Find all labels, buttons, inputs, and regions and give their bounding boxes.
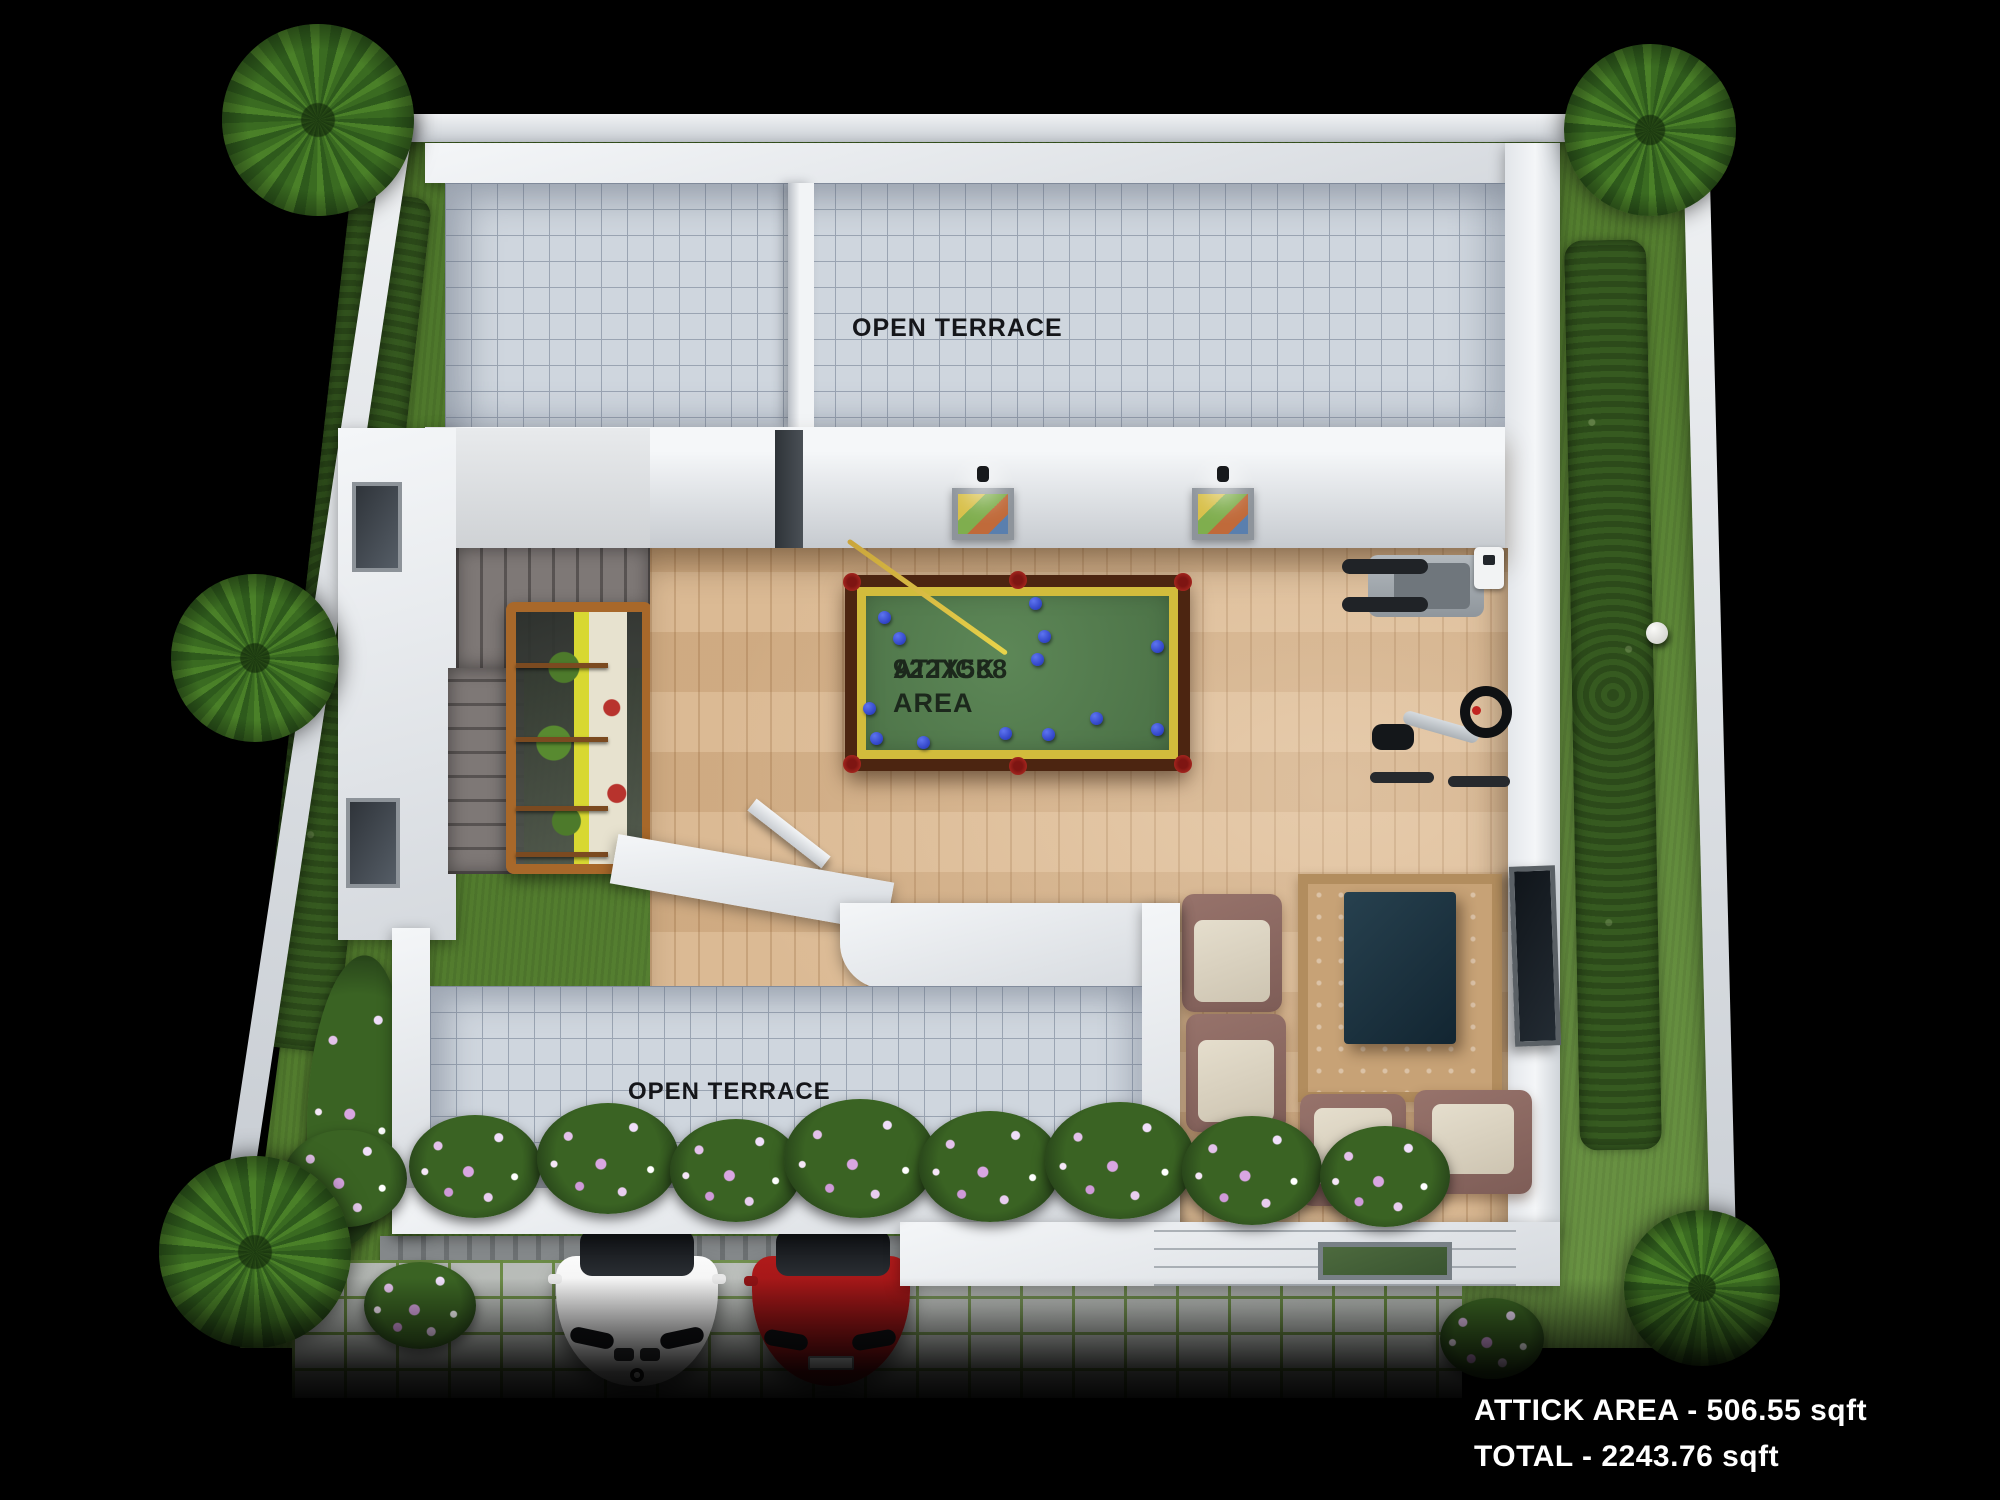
armchair-1-cushion bbox=[1194, 920, 1270, 1002]
boundary-wall-top bbox=[398, 114, 1710, 142]
bike-foot-2 bbox=[1448, 776, 1510, 787]
wall-picture-1 bbox=[952, 488, 1014, 540]
pool-ball-6 bbox=[1151, 640, 1164, 653]
flower-bush-6 bbox=[919, 1111, 1061, 1222]
pool-ball-12 bbox=[870, 732, 883, 745]
bike-seat bbox=[1372, 724, 1414, 750]
car-red-windshield bbox=[776, 1230, 890, 1276]
terrace-door-opening bbox=[775, 430, 803, 548]
treadmill-screen bbox=[1483, 555, 1495, 565]
armchair-1 bbox=[1182, 894, 1282, 1012]
pool-pocket-bl bbox=[843, 755, 861, 773]
pool-ball-1 bbox=[878, 611, 891, 624]
bottom-fade bbox=[0, 1278, 2000, 1408]
picture-spotlight-2 bbox=[1217, 466, 1229, 482]
stair-landing bbox=[456, 428, 650, 548]
pool-ball-2 bbox=[893, 632, 906, 645]
treadmill-grip-1 bbox=[1342, 559, 1428, 574]
pool-ball-9 bbox=[1151, 723, 1164, 736]
palm-tree-3 bbox=[171, 574, 339, 742]
pool-ball-3 bbox=[1029, 597, 1042, 610]
palm-tree-1 bbox=[222, 24, 414, 216]
stairwell-window-1 bbox=[352, 482, 402, 572]
pool-ball-4 bbox=[1038, 630, 1051, 643]
terrace-divider-wall bbox=[788, 183, 814, 427]
stair-handrail-4 bbox=[516, 852, 608, 857]
pool-pocket-tl bbox=[843, 573, 861, 591]
pool-ball-10 bbox=[999, 727, 1012, 740]
stair-handrail-2 bbox=[516, 737, 608, 742]
bike-wheel bbox=[1460, 686, 1512, 738]
open-terrace-bottom-label: OPEN TERRACE bbox=[628, 1078, 831, 1106]
flower-bush-5 bbox=[784, 1099, 936, 1218]
exercise-bike bbox=[1368, 684, 1516, 790]
entrance-doormat bbox=[1318, 1242, 1452, 1280]
floor-plan-render: ATTICK AREA 922X588 bbox=[0, 0, 2000, 1500]
pool-ball-11 bbox=[1042, 728, 1055, 741]
palm-tree-2 bbox=[1564, 44, 1736, 216]
pool-pocket-tr bbox=[1174, 573, 1192, 591]
hedge-right bbox=[1564, 239, 1662, 1150]
flower-bush-2 bbox=[409, 1115, 541, 1218]
flower-bush-9 bbox=[1320, 1126, 1450, 1227]
stair-handrail-1 bbox=[516, 663, 608, 668]
attick-area-dimensions: 922X588 bbox=[893, 652, 1008, 686]
flower-bush-4 bbox=[670, 1119, 802, 1222]
summary-total-area: TOTAL - 2243.76 sqft bbox=[1474, 1440, 1779, 1474]
picture-spotlight-1 bbox=[977, 466, 989, 482]
stair-handrail-3 bbox=[516, 806, 608, 811]
summary-attick-area: ATTICK AREA - 506.55 sqft bbox=[1474, 1394, 1867, 1428]
wing-wall-top bbox=[840, 903, 1180, 989]
pool-pocket-bottom-mid bbox=[1009, 757, 1027, 775]
coffee-table bbox=[1344, 892, 1456, 1044]
pool-ball-7 bbox=[863, 702, 876, 715]
building-wall-top bbox=[425, 143, 1545, 183]
treadmill-console bbox=[1474, 547, 1504, 589]
treadmill bbox=[1342, 545, 1504, 625]
wall-tv bbox=[1509, 865, 1561, 1046]
flower-bush-7 bbox=[1045, 1102, 1195, 1219]
car-white-windshield bbox=[580, 1230, 694, 1276]
pool-ball-8 bbox=[1090, 712, 1103, 725]
pool-ball-5 bbox=[1031, 653, 1044, 666]
pool-pocket-br bbox=[1174, 755, 1192, 773]
pool-pocket-top-mid bbox=[1009, 571, 1027, 589]
armchair-2 bbox=[1186, 1014, 1286, 1132]
flower-bush-3 bbox=[537, 1103, 679, 1214]
bike-foot-1 bbox=[1370, 772, 1434, 783]
bike-display bbox=[1472, 706, 1481, 715]
flower-bush-8 bbox=[1182, 1116, 1322, 1225]
open-terrace-top-label: OPEN TERRACE bbox=[852, 314, 1063, 343]
open-terrace-top bbox=[445, 183, 1505, 427]
wall-picture-2 bbox=[1192, 488, 1254, 540]
stairwell-window-2 bbox=[346, 798, 400, 888]
treadmill-grip-2 bbox=[1342, 597, 1428, 612]
garden-stone bbox=[1646, 622, 1668, 644]
armchair-2-cushion bbox=[1198, 1040, 1274, 1122]
pool-ball-13 bbox=[917, 736, 930, 749]
